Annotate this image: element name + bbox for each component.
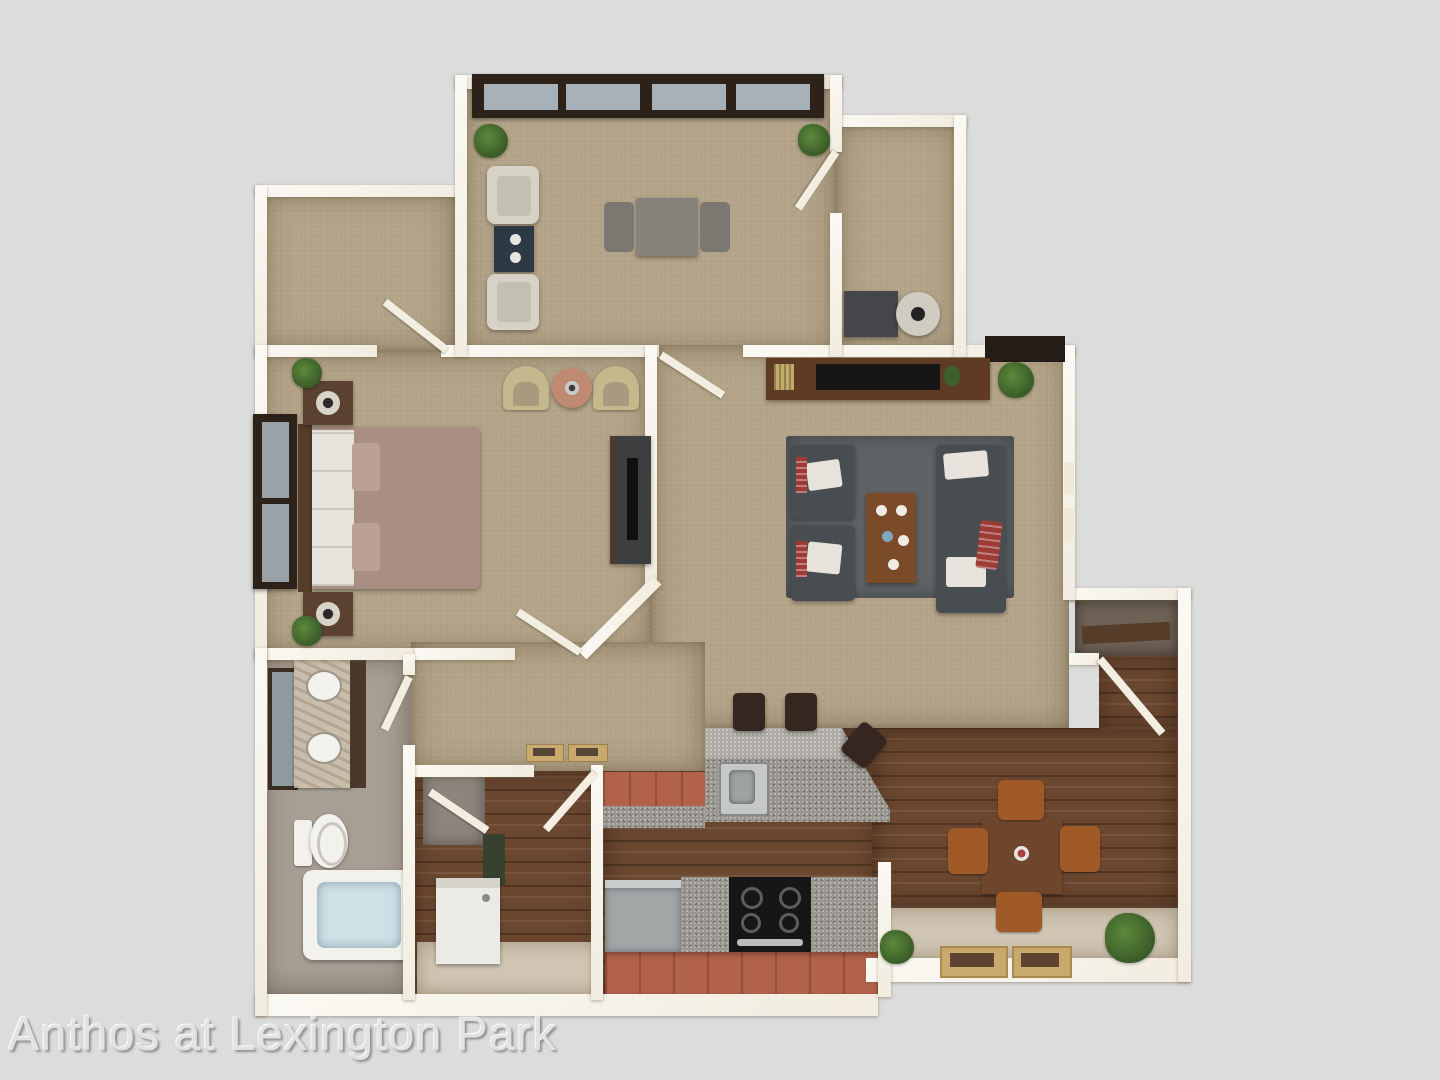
wall-laundry-top bbox=[411, 765, 534, 777]
dining-chair bbox=[948, 828, 988, 874]
sofa-pillow bbox=[943, 450, 989, 480]
window-pane bbox=[484, 84, 558, 110]
dining-chair bbox=[996, 892, 1042, 932]
potted-plant bbox=[292, 616, 322, 646]
toilet-bowl bbox=[310, 814, 348, 868]
small-lamp bbox=[565, 381, 579, 395]
wall-bath-right-upper bbox=[403, 654, 415, 675]
wall-den-right bbox=[954, 115, 966, 357]
wall-kitchen-right-stub bbox=[878, 862, 891, 997]
pet-bowl-tray bbox=[568, 744, 608, 762]
wall-sunroom-right-upper bbox=[830, 75, 842, 152]
wall-bedroom-bottom bbox=[255, 648, 415, 660]
stove-burner bbox=[741, 887, 763, 909]
door-mat bbox=[940, 946, 1008, 978]
window-pane bbox=[262, 504, 289, 582]
wall-kitchen-left bbox=[591, 765, 603, 1000]
mat-inner bbox=[950, 953, 994, 967]
entry-floor bbox=[1099, 653, 1178, 729]
coaster bbox=[898, 535, 909, 546]
toilet-seat bbox=[317, 822, 347, 866]
potted-plant bbox=[1105, 913, 1155, 963]
bed-cushion bbox=[352, 443, 380, 491]
window-pane bbox=[736, 84, 810, 110]
chair-seat bbox=[513, 382, 539, 406]
bathtub-basin bbox=[317, 882, 401, 948]
breakfast-bar-top bbox=[705, 728, 842, 758]
bed-pillows bbox=[312, 430, 354, 586]
sofa bbox=[936, 445, 1006, 613]
wall-mid-center bbox=[441, 345, 659, 357]
oven-handle bbox=[737, 939, 803, 946]
potted-plant bbox=[798, 124, 830, 156]
den-drum-table bbox=[896, 292, 940, 336]
coffee-table bbox=[866, 493, 916, 583]
media-console bbox=[766, 358, 990, 400]
red-throw bbox=[796, 541, 807, 577]
wall-entry-closet-bottom bbox=[1069, 653, 1099, 665]
wall-sunroom-left bbox=[455, 75, 467, 357]
dining-table bbox=[982, 818, 1062, 894]
watermark-text: Anthos at Lexington Park bbox=[8, 1006, 557, 1061]
wall-mid-left bbox=[255, 345, 377, 357]
sunroom-table bbox=[636, 198, 698, 256]
chair-cushion bbox=[497, 282, 531, 322]
living-wall-window-mark bbox=[1064, 462, 1074, 494]
bathtub bbox=[303, 870, 415, 960]
washer-knob bbox=[482, 894, 490, 902]
bar-stool bbox=[733, 693, 765, 731]
stove-burner bbox=[741, 913, 761, 933]
stove-cooktop bbox=[729, 877, 811, 952]
potted-plant bbox=[292, 358, 322, 388]
sunroom-side-table bbox=[494, 226, 534, 272]
stove-burner bbox=[779, 887, 801, 909]
wall-outer-right bbox=[1178, 588, 1191, 982]
sunroom-chair bbox=[604, 202, 634, 252]
kitchen-sink bbox=[719, 762, 769, 816]
console-basket bbox=[774, 364, 794, 390]
door-mat bbox=[1012, 946, 1072, 978]
table-lamp bbox=[316, 391, 340, 415]
window-pane bbox=[566, 84, 640, 110]
coaster bbox=[896, 505, 907, 516]
dishwasher bbox=[605, 880, 681, 952]
sunroom-armchair bbox=[487, 166, 539, 224]
console-plant-small bbox=[944, 366, 960, 386]
bedroom-window bbox=[253, 414, 297, 589]
window-pane bbox=[652, 84, 726, 110]
armchair-pillow bbox=[805, 459, 843, 491]
kitchen-upper-counter bbox=[603, 806, 705, 828]
wall-bedroom-bottom-2 bbox=[415, 648, 515, 660]
dresser-tv bbox=[627, 458, 638, 540]
dining-chair bbox=[1060, 826, 1100, 872]
cup bbox=[510, 252, 521, 263]
bed bbox=[312, 427, 480, 589]
bed-cushion bbox=[352, 523, 380, 571]
red-throw bbox=[796, 457, 807, 493]
potted-plant bbox=[998, 362, 1034, 398]
coaster bbox=[888, 559, 899, 570]
bedroom-tub-chair bbox=[503, 366, 549, 410]
kitchen-upper-cabinet-run bbox=[603, 772, 705, 806]
wall-entry-closet-top bbox=[1069, 588, 1191, 600]
chair-seat bbox=[603, 382, 629, 406]
sunroom-armchair bbox=[487, 274, 539, 330]
drum-center bbox=[911, 307, 925, 321]
potted-plant bbox=[474, 124, 508, 158]
bedroom-round-table bbox=[552, 368, 592, 408]
dining-chair bbox=[998, 780, 1044, 820]
living-wall-window-mark bbox=[1064, 508, 1074, 540]
bedroom-tub-chair bbox=[593, 366, 639, 410]
vanity-sink bbox=[306, 732, 342, 764]
tray-inner bbox=[576, 748, 598, 756]
sink-basin bbox=[729, 770, 755, 804]
armchair bbox=[791, 445, 855, 519]
den-cabinet bbox=[844, 291, 898, 337]
window-pane bbox=[262, 422, 289, 498]
wall-den-top bbox=[830, 115, 967, 127]
pet-bowl-tray bbox=[526, 744, 564, 762]
chair-cushion bbox=[497, 176, 531, 216]
red-pillow bbox=[975, 520, 1003, 570]
tray-inner bbox=[533, 748, 555, 756]
bar-stool bbox=[785, 693, 817, 731]
walkin-closet-floor bbox=[261, 191, 455, 351]
wall-bath-right-lower bbox=[403, 745, 415, 1000]
wall-sunroom-right-lower bbox=[830, 213, 842, 357]
armchair-pillow bbox=[806, 541, 843, 574]
vanity-cabinet bbox=[350, 660, 366, 788]
cup bbox=[510, 234, 521, 245]
wall-bath-left bbox=[255, 648, 267, 1016]
washer-dryer-unit bbox=[436, 878, 500, 964]
bed-headboard bbox=[298, 424, 312, 592]
coaster bbox=[876, 505, 887, 516]
table-centerpiece bbox=[1014, 846, 1029, 861]
mat-inner bbox=[1021, 953, 1059, 967]
sunroom-window bbox=[472, 74, 824, 118]
potted-plant bbox=[880, 930, 914, 964]
floor-plan-rendering: Anthos at Lexington Park bbox=[0, 0, 1440, 1080]
stove-burner bbox=[779, 913, 799, 933]
vanity-sink bbox=[306, 670, 342, 702]
sunroom-chair bbox=[700, 202, 730, 252]
television bbox=[816, 364, 940, 390]
media-nook bbox=[985, 336, 1065, 362]
coaster bbox=[882, 531, 893, 542]
wall-closet-left bbox=[255, 185, 267, 357]
bedroom-dresser bbox=[610, 436, 651, 564]
wall-closet-top bbox=[255, 185, 467, 197]
armchair bbox=[791, 525, 855, 601]
kitchen-base-cabinets bbox=[605, 952, 878, 994]
